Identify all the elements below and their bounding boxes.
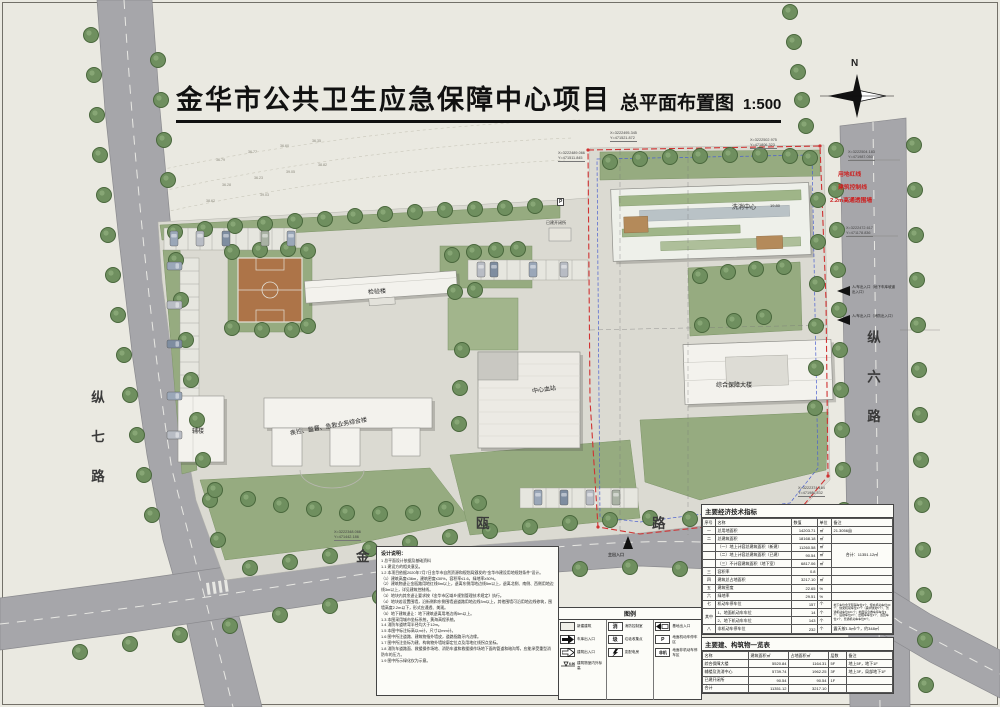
tree-icon [378,207,393,222]
coordinate-y: Y=471521.872 [610,136,637,141]
cell: 14203.71 [792,527,818,535]
cell: 七 [703,600,716,608]
buildings-table: 名称 建筑面积㎡ 占地面积㎡ 层数 备注 综合保障大楼 5520.84 1164… [702,651,893,693]
table-row: 六 绿地率 29.51 % [703,592,893,600]
cell [703,543,716,551]
cell: 90.54 [789,676,829,684]
cell: 非机动车停车位 [716,625,792,633]
table-row: 七 机动车停车位 157 个 地下车位含无障碍车位3个、慢充机动车位30个、快充… [703,600,893,608]
tree-icon [243,561,258,576]
cell: 3217.10 [789,684,829,692]
table-row: 一 总用地面积 14203.71 ㎡ 21.3056亩 [703,527,893,535]
design-notes-panel: 设计说明： 1 总平面设计依据及基础资料1.1 建设方的相关意见。1.2 本项目… [376,546,559,696]
legend-column: 基地出入口 P 地面机动车停车区 非机 地面非机动车停车区 [654,620,701,700]
coordinate-y: Y=471442.186 [334,535,361,540]
header-cell: 层数 [829,652,847,660]
drawing-title: 金华市公共卫生应急保障中心项目 总平面布置图 1:500 [176,78,781,123]
decon-center-building [611,183,811,262]
design-note-line: 1.9 图中所示绿化仅为示意。 [381,658,554,664]
legend-panel: 图例 新建建筑 车库出入口 建筑出入口 [558,607,702,700]
tree-icon [87,68,102,83]
cell: 5520.84 [749,660,789,668]
car-icon [170,231,178,246]
tree-icon [274,498,289,513]
red-note-fence: 2.2m高通透围墙 [830,195,872,204]
cell: 90.54 [792,551,818,559]
spot-elevation: 38.82 [318,163,327,167]
cell [832,576,893,584]
tree-icon [795,93,810,108]
tree-icon [757,310,772,325]
tree-icon [811,235,826,250]
tree-icon [917,588,932,603]
cell: ㎡ [818,551,832,559]
legend-item: P 地面机动车停车区 [655,635,700,644]
legend-item: 变配电房 [608,648,653,657]
label-main-entrance: 主出入口 [608,552,624,557]
tree-icon [695,318,710,333]
table-row: 辅楼及洗消中心 5739.74 1962.25 3F 地上3F，局部地下1F [703,668,893,676]
tree-icon [787,35,802,50]
label-entrance-fire: 人/车出入口（消防出入口） [852,314,896,319]
tree-icon [438,203,453,218]
cell: 18168.18 [792,535,818,543]
tree-icon [833,343,848,358]
legend-item: 非机 地面非机动车停车区 [655,648,700,657]
tree-icon [723,148,738,163]
cell: 22.65 [792,584,818,592]
tree-icon [918,633,933,648]
car-icon [167,301,182,309]
legend-label: 垃圾收集点 [625,637,643,641]
road-label-west: 纵七路 [86,390,106,509]
car-icon [222,231,230,246]
tree-icon [467,245,482,260]
coordinate-callout: X=3222495.345 Y=471521.872 [610,131,637,142]
cell: 合计：11351.12㎡ [832,543,893,568]
cell: 29.51 [792,592,818,600]
label-aux-building: 辅楼 [192,426,204,435]
road-label-south-3: 路 [652,512,666,532]
cell [818,568,832,576]
tree-icon [223,619,238,634]
cell: 232 [792,625,818,633]
tree-icon [145,508,160,523]
coordinate-y: Y=471806.323 [750,143,777,148]
label-support-tower: 综合保障大楼 [716,380,752,389]
cell: 绿地率 [716,592,792,600]
legend-column: 消 消防控制室 圾 垃圾收集点 变配电房 [607,620,655,700]
tree-icon [489,243,504,258]
cell: 建筑总占地面积 [716,576,792,584]
cell: 90.54 [749,676,789,684]
tree-icon [288,214,303,229]
tree-icon [909,228,924,243]
tree-icon [90,108,105,123]
coordinate-callout: X=3222502.975 Y=471806.323 [750,138,777,149]
cell: 五 [703,584,716,592]
design-note-line: （2）建筑物退让金瓯路用地红线5m以上，退离东侧用地边线5m以上，退离北侧、南侧… [381,581,554,593]
cell [832,535,893,543]
legend-label: 建筑出入口 [577,650,595,654]
legend-item: 6.90 建筑物室内外标高 [560,661,605,670]
tree-icon [753,148,768,163]
tree-icon [406,506,421,521]
cell: 5739.74 [749,668,789,676]
spot-elevation: 36.35 [312,139,321,143]
table-row: 综合保障大楼 5520.84 1164.31 5F 地上5F，地下1F [703,660,893,668]
elevation-marker-icon: 6.90 [560,661,575,670]
cell [847,676,893,684]
new-building-icon [560,622,575,631]
blood-center-building [478,352,580,448]
tree-icon [910,273,925,288]
coordinate-callout: X=3222348.066 Y=471442.186 [334,530,361,541]
tree-icon [907,138,922,153]
tree-icon [914,453,929,468]
tree-icon [225,245,240,260]
cell: 地上3F，局部地下1F [847,668,893,676]
cell: % [818,592,832,600]
legend-label: 变配电房 [625,650,639,654]
buildings-panel: 主要建、构筑物一览表 名称 建筑面积㎡ 占地面积㎡ 层数 备注 综合保障大楼 5… [701,637,894,694]
car-icon [490,262,498,277]
coordinate-callout: X=3222374.164 Y=471986.532 [798,486,825,497]
tree-icon [912,363,927,378]
cell: 已建开闭所 [703,676,749,684]
tree-icon [301,244,316,259]
indicators-table: 序号 名称 数值 单位 备注 一 总用地面积 14203.71 ㎡ 21.305… [702,518,893,634]
cell: ㎡ [818,527,832,535]
cell: 1、地面机动车车位 [716,609,792,617]
legend-label: 建筑物室内外标高 [577,661,605,669]
label-entrance-garage: 人/车出入口（地下车库坡道出入口） [852,285,896,294]
tree-icon [445,248,460,263]
cell: （三）不计容建筑面积（地下室） [716,559,792,567]
tree-icon [318,212,333,227]
tree-icon [301,319,316,334]
tree-icon [151,53,166,68]
surface-parking-icon: P [655,635,670,644]
tree-icon [911,318,926,333]
red-note-property-line: 用地红线 [838,169,861,178]
tree-icon [452,417,467,432]
coordinate-y: Y=471511.845 [558,156,585,161]
label-decon-elevation: 19.80 [770,203,780,208]
tree-icon [721,265,736,280]
table-row: 五 建筑密度 22.65 % [703,584,893,592]
tree-icon [623,560,638,575]
tree-icon [373,507,388,522]
cell [832,592,893,600]
tree-icon [563,516,578,531]
tree-icon [834,383,849,398]
table-row: 三 容积率 0.8 [703,568,893,576]
tree-icon [157,133,172,148]
tree-icon [323,549,338,564]
cell [829,684,847,692]
spot-elevation: 36.60 [280,144,289,148]
cell: 2、地下机动车车位 [716,617,792,625]
tree-icon [348,209,363,224]
label-existing-building: 已建开闭所 [546,220,566,225]
tree-icon [915,498,930,513]
tree-icon [307,502,322,517]
spot-elevation: 36.77 [248,150,257,154]
red-note-control-line: 建筑控制线 [838,182,867,191]
cell [703,559,716,567]
tree-icon [448,285,463,300]
buildings-table-body: 综合保障大楼 5520.84 1164.31 5F 地上5F，地下1F 辅楼及洗… [703,660,893,693]
tree-icon [184,373,199,388]
cell: ㎡ [818,535,832,543]
tree-icon [340,506,355,521]
car-icon [560,262,568,277]
tree-icon [799,119,814,134]
cell: 机动车停车位 [716,600,792,608]
coordinate-callout: X=3222489.066 Y=471511.845 [558,151,585,162]
fire-control-icon: 消 [608,622,623,631]
building-entrance-icon [560,648,575,657]
design-note-line: 1.2 本项目依据2020年7月7日金华市自然资源和规划局颁发的“金华市建设用地… [381,570,554,576]
tree-icon [137,468,152,483]
cell: 三 [703,568,716,576]
indicators-panel: 主要经济技术指标 序号 名称 数值 单位 备注 一 总用地面积 14203.71… [701,504,894,635]
legend-label: 地面机动车停车区 [672,635,700,643]
tree-icon [161,173,176,188]
tree-icon [783,149,798,164]
cell [703,551,716,559]
car-icon [287,231,295,246]
cell: 11351.12 [749,684,789,692]
coordinate-y: Y=471986.532 [798,491,825,496]
title-sub: 总平面布置图 [620,88,734,115]
spot-elevation: 36.23 [254,176,263,180]
tree-icon [285,323,300,338]
cell: ㎡ [818,559,832,567]
tree-icon [831,263,846,278]
tree-icon [196,453,211,468]
cell: 1164.31 [789,660,829,668]
tree-icon [836,463,851,478]
tree-icon [809,319,824,334]
cell: 5F [829,660,847,668]
tree-icon [255,323,270,338]
tree-icon [468,283,483,298]
tree-icon [173,628,188,643]
tree-icon [633,152,648,167]
cell: 个 [818,609,832,617]
cell: 个 [818,617,832,625]
cell: ㎡ [818,543,832,551]
tree-icon [225,321,240,336]
tree-icon [810,277,825,292]
header-cell: 单位 [818,519,832,527]
buildings-table-title: 主要建、构筑物一览表 [702,638,893,651]
tree-icon [832,303,847,318]
spot-elevation: 36.28 [222,183,231,187]
coordinate-y: Y=471178.836 [846,231,873,236]
design-notes-list: 1 总平面设计依据及基础资料1.1 建设方的相关意见。1.2 本项目依据2020… [381,558,554,663]
label-lab-building: 检验楼 [368,286,387,296]
tree-icon [443,530,458,545]
tree-icon [809,361,824,376]
car-icon [167,340,182,348]
svg-text:6.90: 6.90 [569,662,575,666]
header-cell: 占地面积㎡ [789,652,829,660]
header-cell: 名称 [716,519,792,527]
tree-icon [908,183,923,198]
tree-icon [455,343,470,358]
table-header-row: 序号 名称 数值 单位 备注 [703,519,893,527]
tree-icon [439,502,454,517]
cell: 二 [703,535,716,543]
tree-icon [693,269,708,284]
title-main: 金华市公共卫生应急保障中心项目 [176,78,611,117]
legend-label: 地面非机动车停车区 [672,648,700,656]
table-row: 合计 11351.12 3217.10 [703,684,893,692]
tree-icon [919,678,934,693]
title-scale: 1:500 [743,96,781,113]
cell: 综合保障大楼 [703,660,749,668]
tree-icon [693,149,708,164]
cell: 6817.06 [792,559,818,567]
cell [832,568,893,576]
drawing-sheet: 金华市公共卫生应急保障中心项目 总平面布置图 1:500 N 纵七路 纵六路 金… [0,0,1000,707]
car-icon [477,262,485,277]
cell [832,584,893,592]
road-label-south-1: 金 [356,545,370,565]
cell: 157 [792,600,818,608]
legend-item: 消 消防控制室 [608,622,653,631]
tree-icon [835,423,850,438]
spot-elevation: 36.79 [216,158,225,162]
legend-label: 消防控制室 [625,624,643,628]
tree-icon [93,148,108,163]
table-row: 二 总建筑面积 18168.18 ㎡ [703,535,893,543]
tree-icon [603,155,618,170]
cell: 四 [703,576,716,584]
car-icon [167,262,182,270]
tree-icon [811,193,826,208]
cell: 0.8 [792,568,818,576]
tree-icon [472,496,487,511]
tree-icon [101,228,116,243]
tree-icon [523,520,538,535]
non-motor-parking-icon: 非机 [655,648,670,657]
tree-icon [511,242,526,257]
car-icon [529,262,537,277]
cell: 14 [792,609,818,617]
tree-icon [73,645,88,660]
cell: 容积率 [716,568,792,576]
cell: 总建筑面积 [716,535,792,543]
legend-label: 车库出入口 [577,637,595,641]
car-icon [196,231,204,246]
cell: 3F [829,668,847,676]
garbage-point-icon: 圾 [608,635,623,644]
cell: 地上5F，地下1F [847,660,893,668]
tree-icon [727,314,742,329]
table-row: 已建开闭所 90.54 90.54 1F [703,676,893,684]
car-icon [612,490,620,505]
existing-building [549,228,571,241]
coordinate-y: Y=471987.050 [848,155,875,160]
car-icon [167,431,182,439]
cell: 地下车位含无障碍车位3个、慢充机动车位30个、快充机动车位17个（其中快充5个）… [832,600,893,625]
table-header-row: 名称 建筑面积㎡ 占地面积㎡ 层数 备注 [703,652,893,660]
tree-icon [154,93,169,108]
tree-icon [663,150,678,165]
legend-item: 新建建筑 [560,622,605,631]
cell: 3217.10 [792,576,818,584]
tree-icon [830,223,845,238]
legend-column: 新建建筑 车库出入口 建筑出入口 6.90 [559,620,607,700]
tree-icon [273,608,288,623]
cell: % [818,584,832,592]
cell: 总用地面积 [716,527,792,535]
car-icon [560,490,568,505]
tree-icon [453,381,468,396]
tree-icon [241,492,256,507]
legend-title: 图例 [559,608,701,620]
legend-item: 基地出入口 [655,622,700,631]
cell: 合计 [703,684,749,692]
cell: ㎡ [818,576,832,584]
cell: （二）地上计容总建筑面积（已建） [716,551,792,559]
cell: 一 [703,527,716,535]
road-label-east: 纵六路 [862,330,882,449]
tree-icon [84,28,99,43]
tree-icon [783,5,798,20]
tree-icon [211,533,226,548]
tree-icon [97,188,112,203]
legend-label: 基地出入口 [672,624,690,628]
tree-icon [258,217,273,232]
coordinate-callout: X=3222504.183 Y=471987.050 [848,150,875,161]
tree-icon [528,199,543,214]
cell: 建筑密度 [716,584,792,592]
tree-icon [673,562,688,577]
spot-elevation: 39.05 [286,170,295,174]
cell: （一）地上计容总建筑面积（新建） [716,543,792,551]
legend-label: 新建建筑 [577,624,591,628]
header-cell: 名称 [703,652,749,660]
legend-item: 车库出入口 [560,635,605,644]
header-cell: 数值 [792,519,818,527]
tree-icon [777,260,792,275]
cell: 露天按1.5㎡/个，约348㎡ [832,625,893,633]
header-cell: 建筑面积㎡ [749,652,789,660]
header-cell: 序号 [703,519,716,527]
basketball-court [238,258,302,322]
design-notes-title: 设计说明： [381,550,554,557]
tree-icon [791,65,806,80]
legend-item: 建筑出入口 [560,648,605,657]
power-room-icon [608,648,623,657]
parking-sign-icon: P [557,198,564,206]
tree-icon [749,262,764,277]
cell: 1F [829,676,847,684]
table-row: （一）地上计容总建筑面积（新建） 11260.58 ㎡ 合计：11351.12㎡ [703,543,893,551]
tree-icon [916,543,931,558]
tree-icon [573,562,588,577]
tree-icon [283,555,298,570]
legend-item: 圾 垃圾收集点 [608,635,653,644]
table-row: 四 建筑总占地面积 3217.10 ㎡ [703,576,893,584]
car-icon [534,490,542,505]
road-label-south-2: 瓯 [476,512,490,532]
